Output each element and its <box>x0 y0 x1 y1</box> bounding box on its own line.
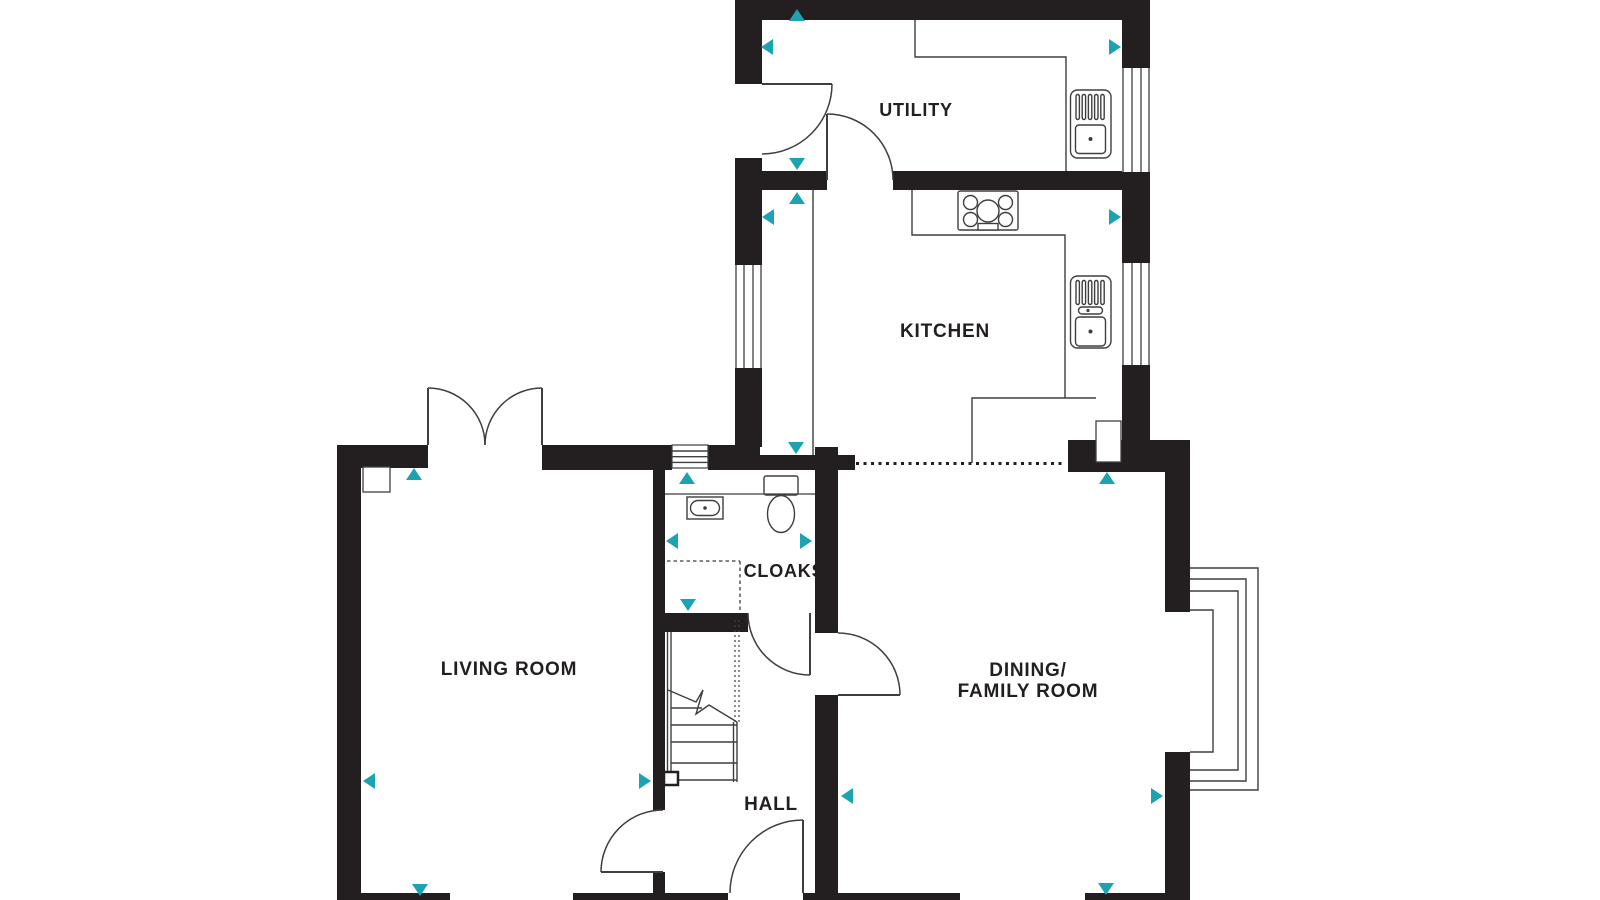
dining-room-door <box>838 633 900 695</box>
dining-label-line1: DINING/ <box>989 660 1066 681</box>
measure-arrow-down-icon <box>788 442 804 454</box>
wall-segment <box>1165 752 1190 900</box>
measure-arrow-left-icon <box>841 788 853 804</box>
wall-segment <box>337 445 428 468</box>
measure-arrow-left-icon <box>762 209 774 225</box>
window-kitchen-right <box>1122 263 1150 365</box>
measure-arrow-up-icon <box>679 472 695 484</box>
wall-segment <box>762 171 827 190</box>
wall-segment <box>1122 365 1150 447</box>
measure-arrow-right-icon <box>1109 209 1121 225</box>
floor-plan-drawing: UTILITY KITCHEN CLOAKS LIVING ROOM DININ… <box>0 0 1600 900</box>
wall-segment <box>653 468 665 810</box>
measure-arrow-right-icon <box>639 773 651 789</box>
hob-icon <box>958 191 1018 230</box>
wall-segment <box>815 695 838 893</box>
kitchen-sink-icon <box>1071 276 1112 348</box>
wall-segment <box>803 893 960 900</box>
wall-segment <box>573 893 728 900</box>
living-room-door <box>601 810 663 872</box>
stair-break-line <box>668 690 737 722</box>
wall-segment <box>760 455 855 470</box>
wall-segment <box>542 445 672 470</box>
wall-segment <box>735 158 762 265</box>
wall-segment <box>1122 172 1150 263</box>
utility-label: UTILITY <box>879 100 953 120</box>
walls <box>337 0 1190 900</box>
side-entrance-door <box>762 84 832 154</box>
chimney-recess <box>363 467 390 492</box>
wall-segment <box>653 872 665 900</box>
utility-worktop <box>915 20 1066 171</box>
measure-arrow-up-icon <box>789 192 805 204</box>
bay-window <box>1190 568 1258 790</box>
hall-label: HALL <box>744 794 798 815</box>
measure-arrow-down-icon <box>680 599 696 611</box>
wall-segment <box>735 0 762 84</box>
wall-segment <box>893 171 1122 190</box>
wall-segment <box>1120 440 1190 472</box>
living-room-label: LIVING ROOM <box>441 659 578 680</box>
worktops <box>813 20 1096 463</box>
measure-arrow-left-icon <box>666 533 678 549</box>
window-utility-right <box>1122 68 1150 172</box>
utility-sink-icon <box>1071 90 1112 158</box>
toilet-icon <box>764 476 798 533</box>
wall-segment <box>1122 0 1150 68</box>
cloaks-label: CLOAKS <box>744 561 825 581</box>
wall-segment <box>337 445 361 900</box>
cloaks-door <box>748 613 810 675</box>
measure-arrow-left-icon <box>363 773 375 789</box>
dining-label-line2: FAMILY ROOM <box>958 681 1099 702</box>
front-door <box>730 820 803 893</box>
wall-segment <box>708 445 760 470</box>
measure-arrow-right-icon <box>1109 39 1121 55</box>
measure-arrow-up-icon <box>1099 472 1115 484</box>
utility-kitchen-door <box>827 114 893 180</box>
wall-segment <box>665 613 748 632</box>
window-kitchen-left <box>735 265 762 368</box>
dimension-arrows <box>363 9 1163 896</box>
french-doors <box>428 388 542 445</box>
wall-segment <box>735 368 762 447</box>
flue-recess <box>1096 421 1121 462</box>
stair-newel-post <box>664 772 678 785</box>
measure-arrow-up-icon <box>406 468 422 480</box>
wall-segment <box>1165 472 1190 612</box>
stair-upper-treads <box>672 445 708 468</box>
wall-segment <box>1085 893 1190 900</box>
kitchen-label: KITCHEN <box>900 321 990 342</box>
floor-plan-page: UTILITY KITCHEN CLOAKS LIVING ROOM DININ… <box>0 0 1600 900</box>
basin-icon <box>687 497 723 519</box>
measure-arrow-left-icon <box>761 39 773 55</box>
measure-arrow-right-icon <box>800 533 812 549</box>
wall-segment <box>815 447 838 633</box>
measure-arrow-down-icon <box>789 158 805 170</box>
measure-arrow-right-icon <box>1151 788 1163 804</box>
